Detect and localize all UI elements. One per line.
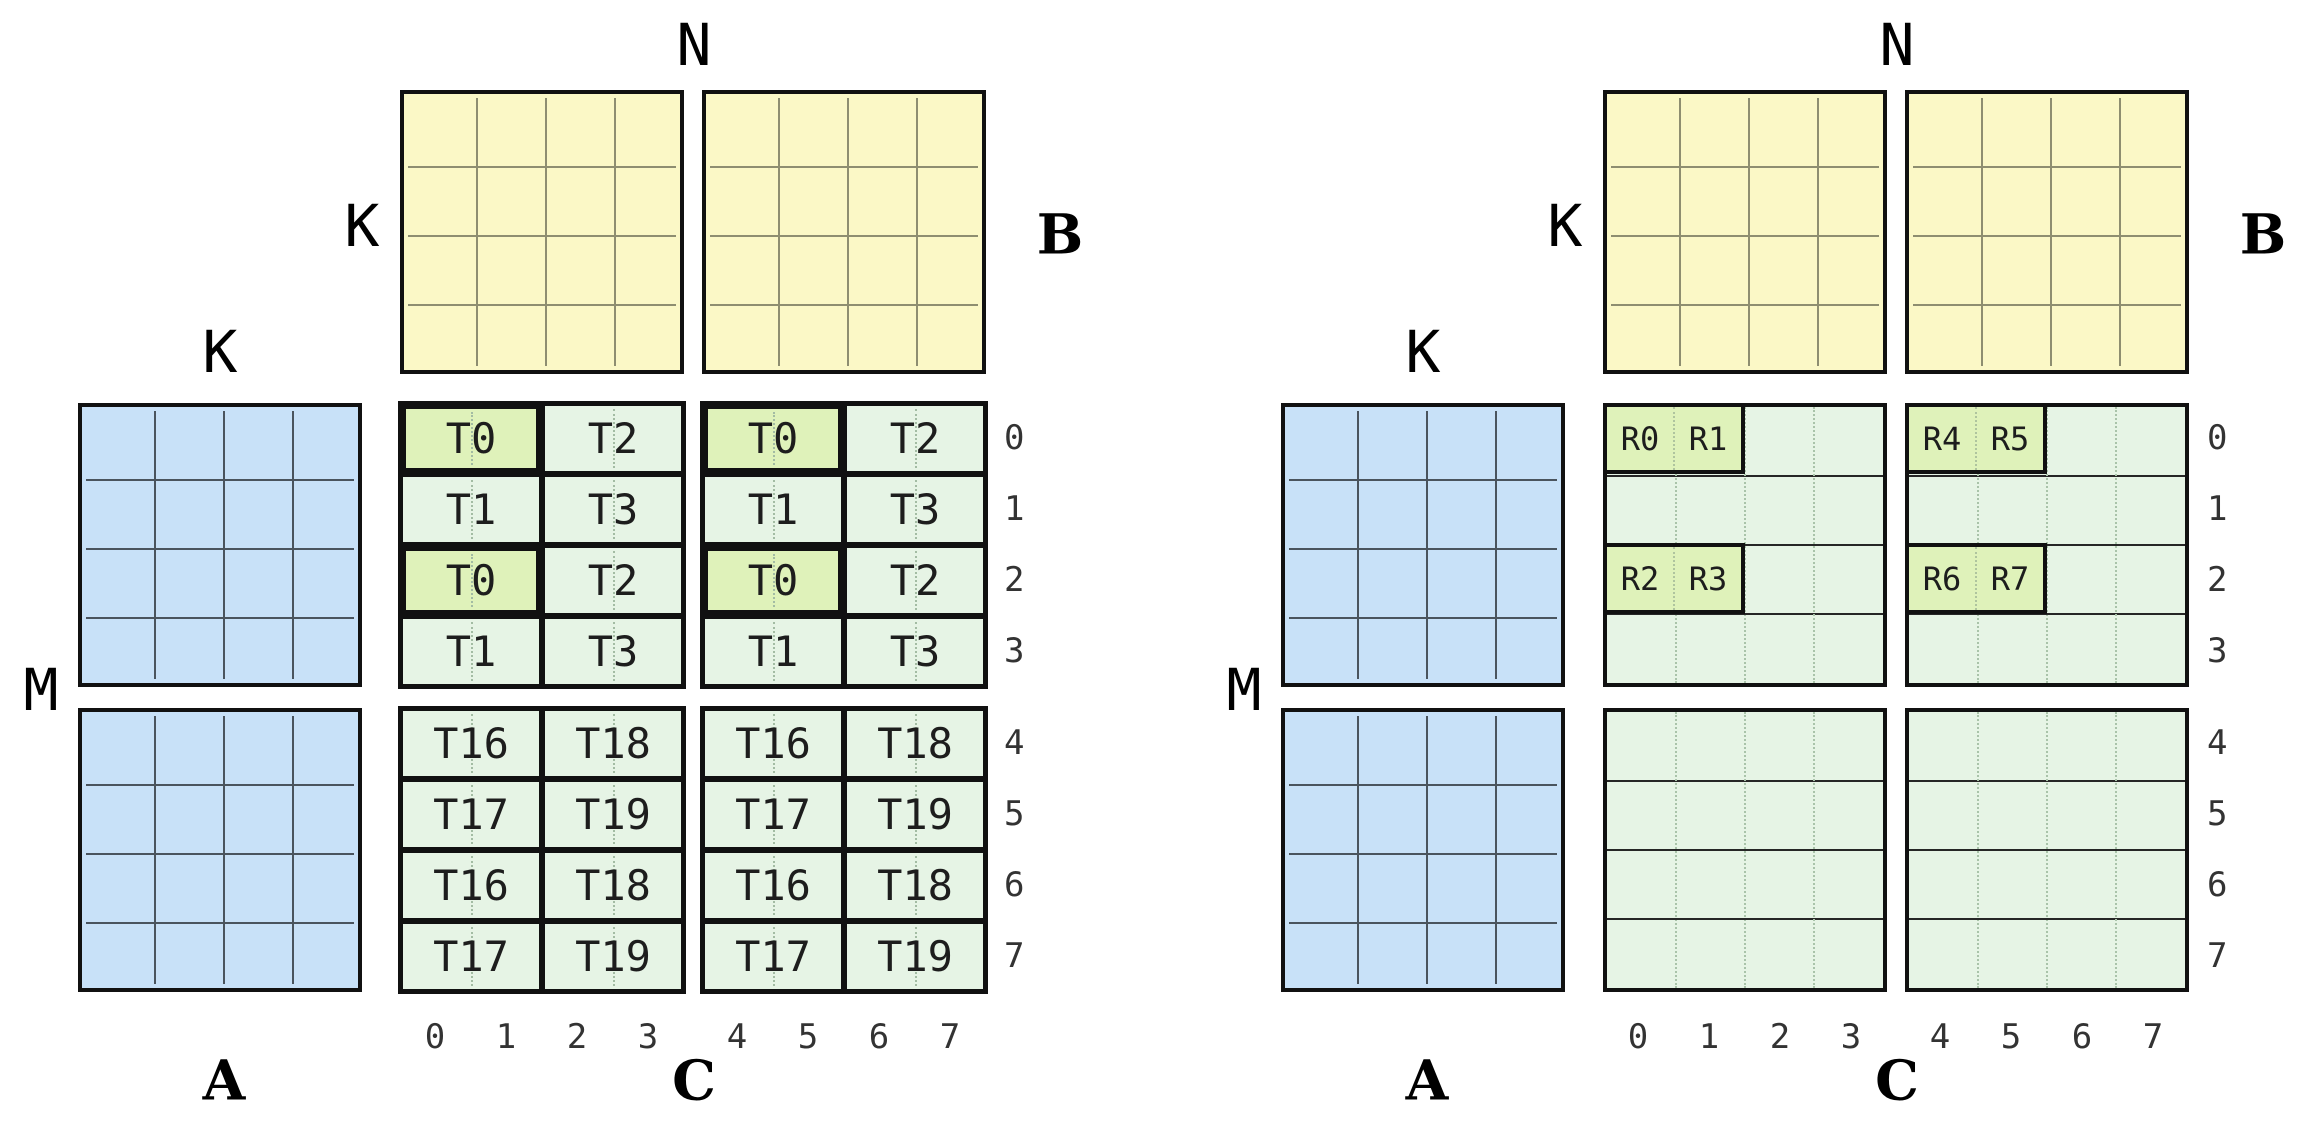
register-label: R6 [1923,563,1962,595]
thread-tile: T16 [400,708,542,779]
dim-label-m: M [1227,661,1262,719]
thread-tile: T17 [702,779,844,850]
grid-line [86,548,354,550]
thread-tile-label: T0 [748,560,799,602]
dim-label-k-above-a: K [1406,323,1441,381]
thread-tile-label: T3 [890,489,941,531]
thread-tile: T2 [542,403,684,474]
col-index: 3 [1841,1020,1861,1054]
c-block-bottom-left: T16T18T17T19T16T18T17T19 [400,708,684,992]
grid-line [1679,98,1681,366]
row-index: 2 [1004,563,1024,597]
grid-line [1289,548,1557,550]
thread-tile: T17 [400,779,542,850]
thread-tile-label: T0 [446,418,497,460]
grid-line [1913,235,2181,237]
thread-tile-label: T1 [446,489,497,531]
grid-line [408,304,676,306]
row-index: 3 [2207,634,2227,668]
grid-line [1748,98,1750,366]
grid-line [223,411,225,679]
c-block-bottom-right [1905,708,2189,992]
row-index: 2 [2207,563,2227,597]
thread-tile: T18 [542,850,684,921]
thread-tile-label: T18 [877,865,953,907]
col-index: 0 [425,1020,445,1054]
thread-tile: T16 [702,850,844,921]
register-label: R7 [1991,563,2030,595]
grid-line [847,98,849,366]
register-cell: R2 [1607,547,1675,610]
dim-label-n: N [677,16,712,74]
matrix-b-block-1 [702,90,986,374]
matrix-label-a: A [203,1053,246,1108]
diagram-left-thread-tiling: N K B K M A C T0T2T1T3T0T2T1T3T0T2T1T3T0… [0,0,1100,1126]
thread-tile-label: T16 [433,865,509,907]
gemm-tiling-figure: N K B K M A C T0T2T1T3T0T2T1T3T0T2T1T3T0… [0,0,2300,1126]
row-index: 4 [1004,726,1024,760]
register-label: R1 [1689,423,1728,455]
thread-tile-label: T3 [588,489,639,531]
grid-line [292,411,294,679]
grid-line [476,98,478,366]
thread-tile: T1 [702,474,844,545]
thread-tile-label: T18 [575,723,651,765]
row-index: 1 [1004,492,1024,526]
c-block-bottom-right: T16T18T17T19T16T18T17T19 [702,708,986,992]
thread-tile-highlighted: T0 [702,403,844,474]
row-index: 5 [2207,797,2227,831]
register-label: R2 [1621,563,1660,595]
grid-line [86,479,354,481]
thread-tile-label: T1 [748,489,799,531]
register-box: R6R7 [1905,543,2047,614]
thread-tile: T16 [400,850,542,921]
thread-tile-label: T1 [446,631,497,673]
row-index: 5 [1004,797,1024,831]
register-cell: R5 [1977,407,2043,470]
register-box: R4R5 [1905,403,2047,474]
thread-tile-label: T19 [877,936,953,978]
dotted-grid-line [1813,407,1815,683]
dim-label-n: N [1880,16,1915,74]
matrix-label-b: B [2240,207,2287,262]
row-index: 0 [1004,421,1024,455]
thread-tile-label: T17 [433,794,509,836]
dotted-grid-line [1744,712,1746,988]
thread-tile: T17 [400,921,542,992]
row-index: 4 [2207,726,2227,760]
thread-tile-label: T2 [588,560,639,602]
grid-line [86,784,354,786]
grid-line [1817,98,1819,366]
matrix-a-block-0 [1281,403,1565,687]
col-index: 2 [1770,1020,1790,1054]
thread-tile: T2 [542,545,684,616]
thread-tile-label: T18 [877,723,953,765]
grid-line [154,716,156,984]
grid-line [1357,411,1359,679]
thread-tile: T2 [844,403,986,474]
grid-line [1913,304,2181,306]
grid-line [1611,304,1879,306]
grid-line [154,411,156,679]
register-cell: R4 [1909,407,1977,470]
grid-line [408,166,676,168]
thread-tile: T18 [844,708,986,779]
col-index: 0 [1628,1020,1648,1054]
grid-line [1289,922,1557,924]
col-index: 2 [567,1020,587,1054]
thread-tile-label: T19 [877,794,953,836]
grid-line [292,716,294,984]
thread-tile-label: T0 [446,560,497,602]
grid-line [2050,98,2052,366]
thread-tile-label: T2 [890,560,941,602]
thread-tile-label: T19 [575,794,651,836]
matrix-label-b: B [1037,207,1084,262]
col-index: 3 [638,1020,658,1054]
thread-tile-label: T17 [433,936,509,978]
matrix-b-block-0 [400,90,684,374]
row-index: 0 [2207,421,2227,455]
col-index: 6 [2072,1020,2092,1054]
grid-line [1289,617,1557,619]
grid-line [710,304,978,306]
grid-line [1913,166,2181,168]
thread-tile-label: T17 [735,936,811,978]
col-index: 4 [1930,1020,1950,1054]
diagram-right-register-tiling: N K B K M A C R0R1R2R3R4R5R6R70123456701… [1203,0,2300,1126]
matrix-b-block-1 [1905,90,2189,374]
grid-line [86,922,354,924]
register-label: R3 [1689,563,1728,595]
thread-tile: T19 [542,921,684,992]
grid-line [710,235,978,237]
c-block-top-right: R4R5R6R7 [1905,403,2189,687]
grid-line [1426,411,1428,679]
thread-tile: T16 [702,708,844,779]
col-index: 5 [2001,1020,2021,1054]
thread-tile-label: T16 [433,723,509,765]
thread-tile: T3 [844,616,986,687]
thread-tile-label: T2 [588,418,639,460]
matrix-a-block-1 [78,708,362,992]
grid-line [86,853,354,855]
grid-line [408,235,676,237]
matrix-a-block-1 [1281,708,1565,992]
grid-line [1909,918,2185,920]
thread-tile-label: T16 [735,865,811,907]
matrix-label-a: A [1406,1053,1449,1108]
row-index: 6 [2207,868,2227,902]
thread-tile-label: T3 [890,631,941,673]
thread-tile: T1 [702,616,844,687]
grid-line [1289,853,1557,855]
grid-line [1981,98,1983,366]
thread-tile: T18 [844,850,986,921]
dotted-grid-line [2115,407,2117,683]
matrix-a-block-0 [78,403,362,687]
col-index: 4 [727,1020,747,1054]
register-cell: R3 [1675,547,1741,610]
grid-line [1495,716,1497,984]
thread-tile-highlighted: T0 [400,403,542,474]
dotted-grid-line [1813,712,1815,988]
row-index: 6 [1004,868,1024,902]
thread-tile: T17 [702,921,844,992]
c-block-top-left: T0T2T1T3T0T2T1T3 [400,403,684,687]
thread-tile-label: T19 [575,936,651,978]
grid-line [1611,235,1879,237]
col-index: 1 [1699,1020,1719,1054]
register-label: R0 [1621,423,1660,455]
thread-tile: T3 [542,474,684,545]
row-index: 3 [1004,634,1024,668]
thread-tile: T18 [542,708,684,779]
dim-label-m: M [24,661,59,719]
c-block-top-right: T0T2T1T3T0T2T1T3 [702,403,986,687]
register-cell: R6 [1909,547,1977,610]
thread-tile: T19 [844,921,986,992]
thread-tile-label: T3 [588,631,639,673]
register-box: R0R1 [1603,403,1745,474]
col-index: 1 [496,1020,516,1054]
thread-tile: T1 [400,474,542,545]
grid-line [223,716,225,984]
dim-label-k-beside-b: K [345,197,380,255]
c-block-top-left: R0R1R2R3 [1603,403,1887,687]
dim-label-k-beside-b: K [1548,197,1583,255]
register-cell: R0 [1607,407,1675,470]
row-index: 7 [1004,939,1024,973]
matrix-label-c: C [1875,1053,1919,1108]
grid-line [1426,716,1428,984]
register-box: R2R3 [1603,543,1745,614]
thread-tile: T19 [844,779,986,850]
grid-line [778,98,780,366]
row-index: 1 [2207,492,2227,526]
thread-tile-highlighted: T0 [400,545,542,616]
register-label: R4 [1923,423,1962,455]
grid-line [614,98,616,366]
thread-tile-label: T18 [575,865,651,907]
col-index: 6 [869,1020,889,1054]
grid-line [1289,784,1557,786]
thread-tile-label: T16 [735,723,811,765]
grid-line [710,166,978,168]
dotted-grid-line [2115,712,2117,988]
thread-tile: T2 [844,545,986,616]
dim-label-k-above-a: K [203,323,238,381]
c-block-bottom-left [1603,708,1887,992]
grid-line [86,617,354,619]
row-index: 7 [2207,939,2227,973]
matrix-label-c: C [672,1053,716,1108]
grid-line [1495,411,1497,679]
thread-tile: T3 [844,474,986,545]
grid-line [1607,918,1883,920]
matrix-b-block-0 [1603,90,1887,374]
dotted-grid-line [2046,712,2048,988]
col-index: 5 [798,1020,818,1054]
thread-tile-label: T0 [748,418,799,460]
grid-line [1357,716,1359,984]
thread-tile: T1 [400,616,542,687]
col-index: 7 [2143,1020,2163,1054]
grid-line [2119,98,2121,366]
thread-tile-highlighted: T0 [702,545,844,616]
thread-tile: T19 [542,779,684,850]
col-index: 7 [940,1020,960,1054]
register-cell: R1 [1675,407,1741,470]
thread-tile: T3 [542,616,684,687]
register-label: R5 [1991,423,2030,455]
grid-line [916,98,918,366]
grid-line [1289,479,1557,481]
thread-tile-label: T17 [735,794,811,836]
thread-tile-label: T1 [748,631,799,673]
register-cell: R7 [1977,547,2043,610]
grid-line [1611,166,1879,168]
grid-line [545,98,547,366]
thread-tile-label: T2 [890,418,941,460]
